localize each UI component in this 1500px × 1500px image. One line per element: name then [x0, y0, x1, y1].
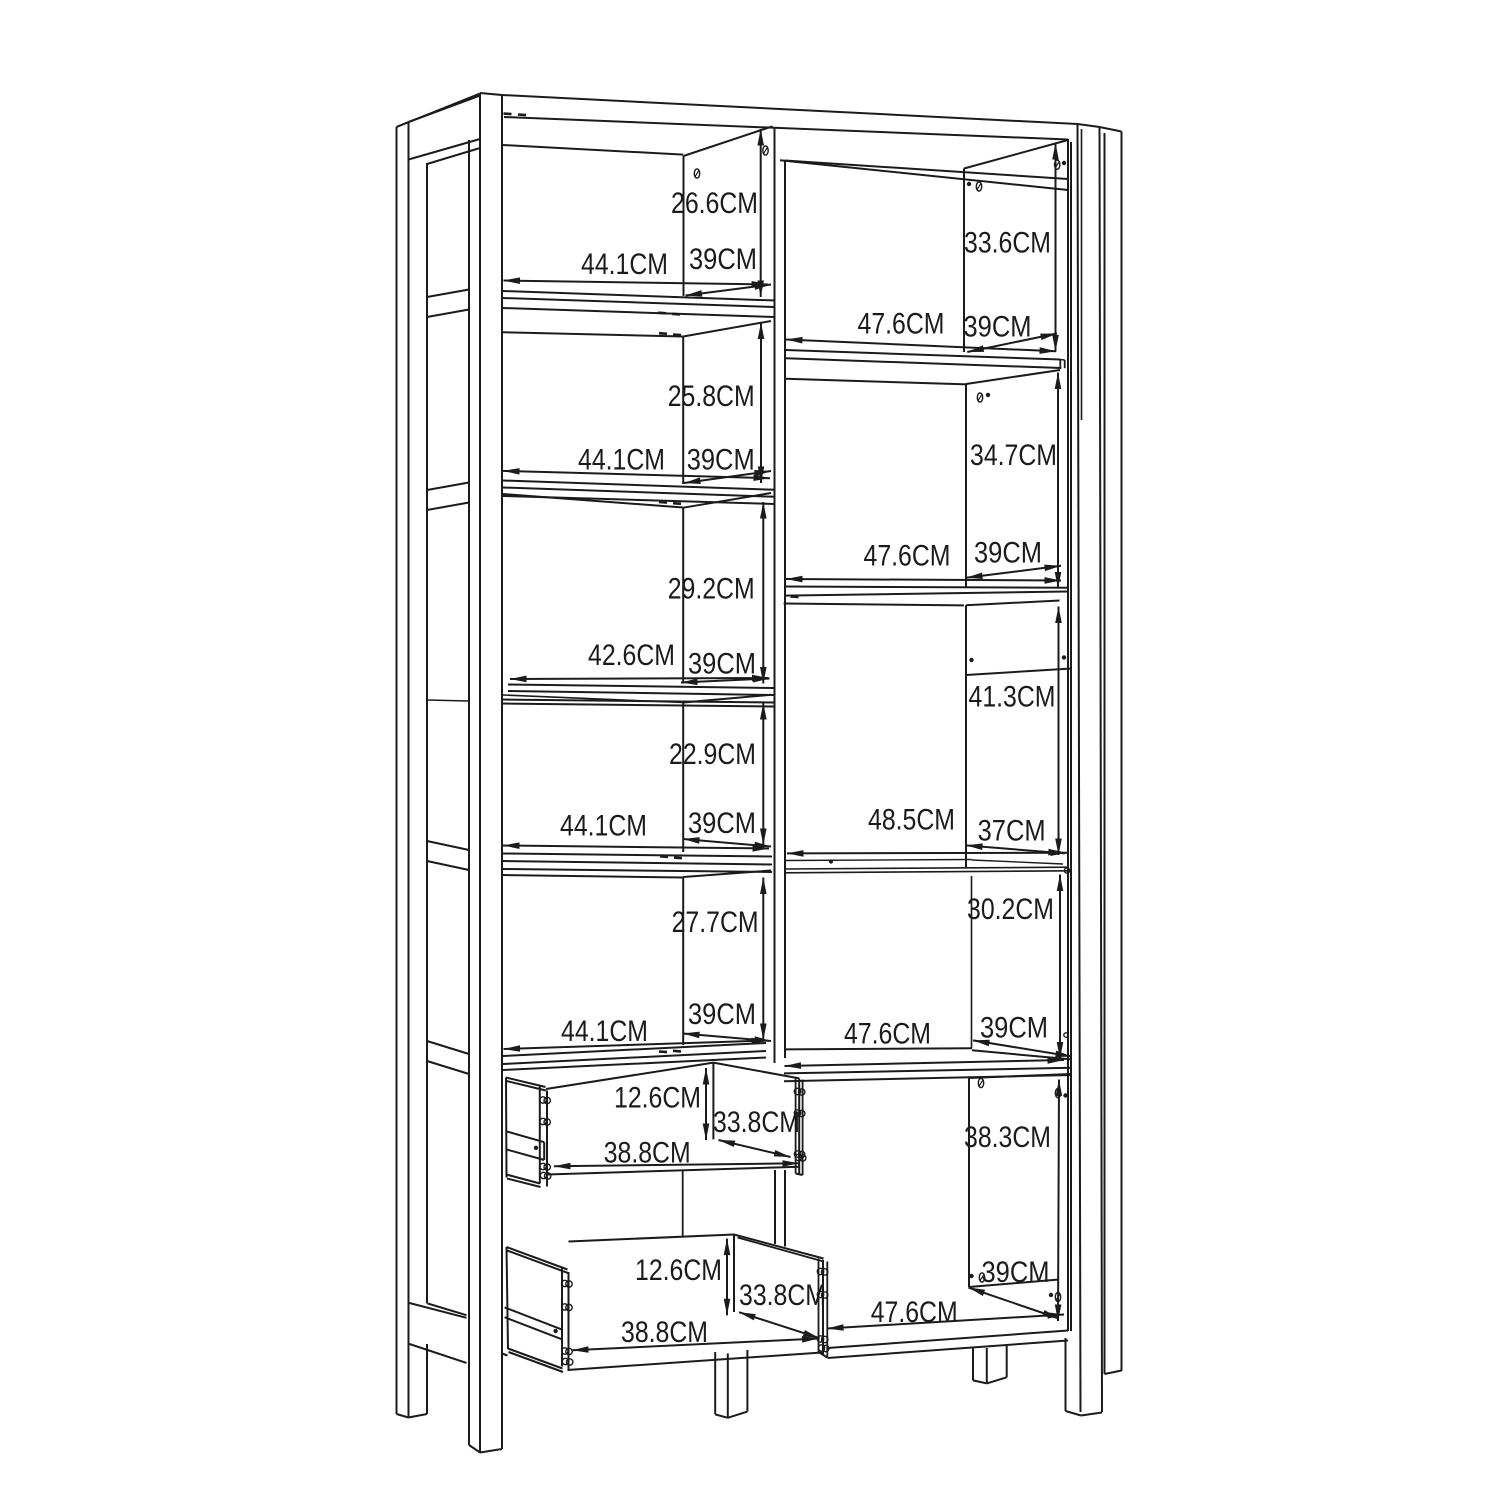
svg-text:39CM: 39CM	[689, 243, 757, 276]
svg-text:47.6CM: 47.6CM	[858, 308, 945, 341]
svg-text:39CM: 39CM	[688, 998, 756, 1031]
svg-text:34.7CM: 34.7CM	[970, 439, 1057, 472]
svg-text:39CM: 39CM	[688, 807, 756, 840]
svg-text:12.6CM: 12.6CM	[635, 1254, 722, 1287]
svg-text:39CM: 39CM	[964, 311, 1032, 344]
svg-text:33.8CM: 33.8CM	[713, 1106, 800, 1139]
svg-text:44.1CM: 44.1CM	[561, 1015, 648, 1048]
svg-text:47.6CM: 47.6CM	[864, 540, 951, 573]
svg-text:41.3CM: 41.3CM	[969, 681, 1056, 714]
svg-text:39CM: 39CM	[980, 1012, 1048, 1045]
svg-text:33.6CM: 33.6CM	[964, 227, 1051, 260]
svg-text:37CM: 37CM	[978, 815, 1046, 848]
svg-text:44.1CM: 44.1CM	[578, 444, 665, 477]
svg-text:27.7CM: 27.7CM	[672, 906, 759, 939]
svg-text:38.3CM: 38.3CM	[964, 1121, 1051, 1154]
svg-text:47.6CM: 47.6CM	[844, 1018, 931, 1051]
svg-text:38.8CM: 38.8CM	[621, 1316, 708, 1349]
svg-text:22.9CM: 22.9CM	[669, 738, 756, 771]
svg-text:29.2CM: 29.2CM	[668, 572, 755, 605]
svg-text:33.8CM: 33.8CM	[739, 1279, 826, 1312]
svg-text:26.6CM: 26.6CM	[671, 187, 758, 220]
svg-text:42.6CM: 42.6CM	[588, 639, 675, 672]
svg-text:39CM: 39CM	[982, 1256, 1050, 1289]
svg-text:30.2CM: 30.2CM	[967, 893, 1054, 926]
svg-text:39CM: 39CM	[687, 444, 755, 477]
svg-text:44.1CM: 44.1CM	[560, 810, 647, 843]
svg-text:39CM: 39CM	[974, 537, 1042, 570]
svg-text:39CM: 39CM	[688, 648, 756, 681]
svg-text:12.6CM: 12.6CM	[614, 1082, 701, 1115]
svg-text:25.8CM: 25.8CM	[668, 380, 755, 413]
svg-text:48.5CM: 48.5CM	[868, 804, 955, 837]
svg-text:47.6CM: 47.6CM	[871, 1296, 958, 1329]
svg-text:38.8CM: 38.8CM	[604, 1137, 691, 1170]
svg-text:44.1CM: 44.1CM	[581, 248, 668, 281]
